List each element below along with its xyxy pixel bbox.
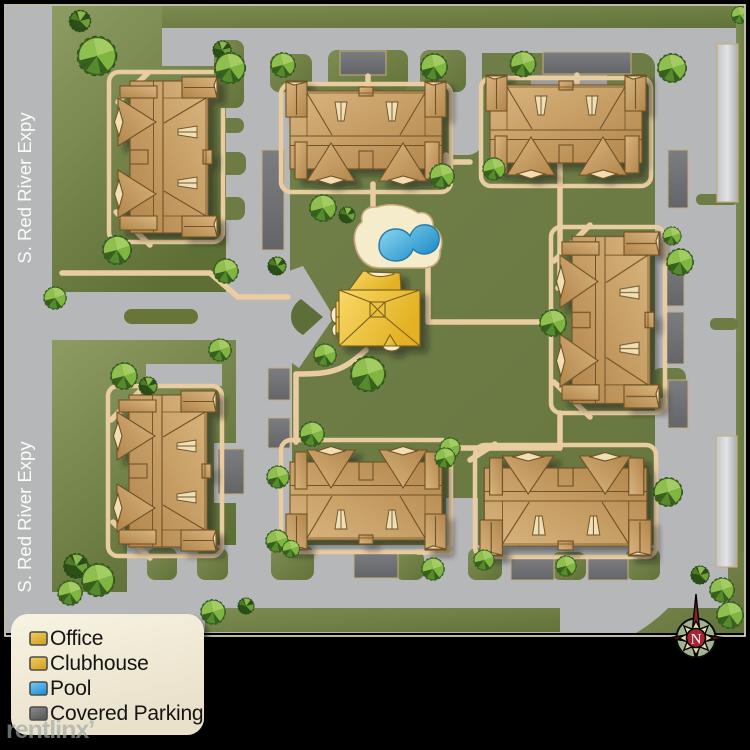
svg-text:rentlinx’: rentlinx’ (6, 716, 94, 744)
svg-text:Office: Office (50, 627, 103, 650)
svg-text:Pool: Pool (50, 677, 91, 700)
svg-text:S. Red River Expy: S. Red River Expy (14, 112, 35, 264)
svg-text:S. Red River Expy: S. Red River Expy (14, 441, 35, 593)
svg-text:N: N (691, 632, 702, 648)
svg-text:Clubhouse: Clubhouse (50, 652, 149, 675)
